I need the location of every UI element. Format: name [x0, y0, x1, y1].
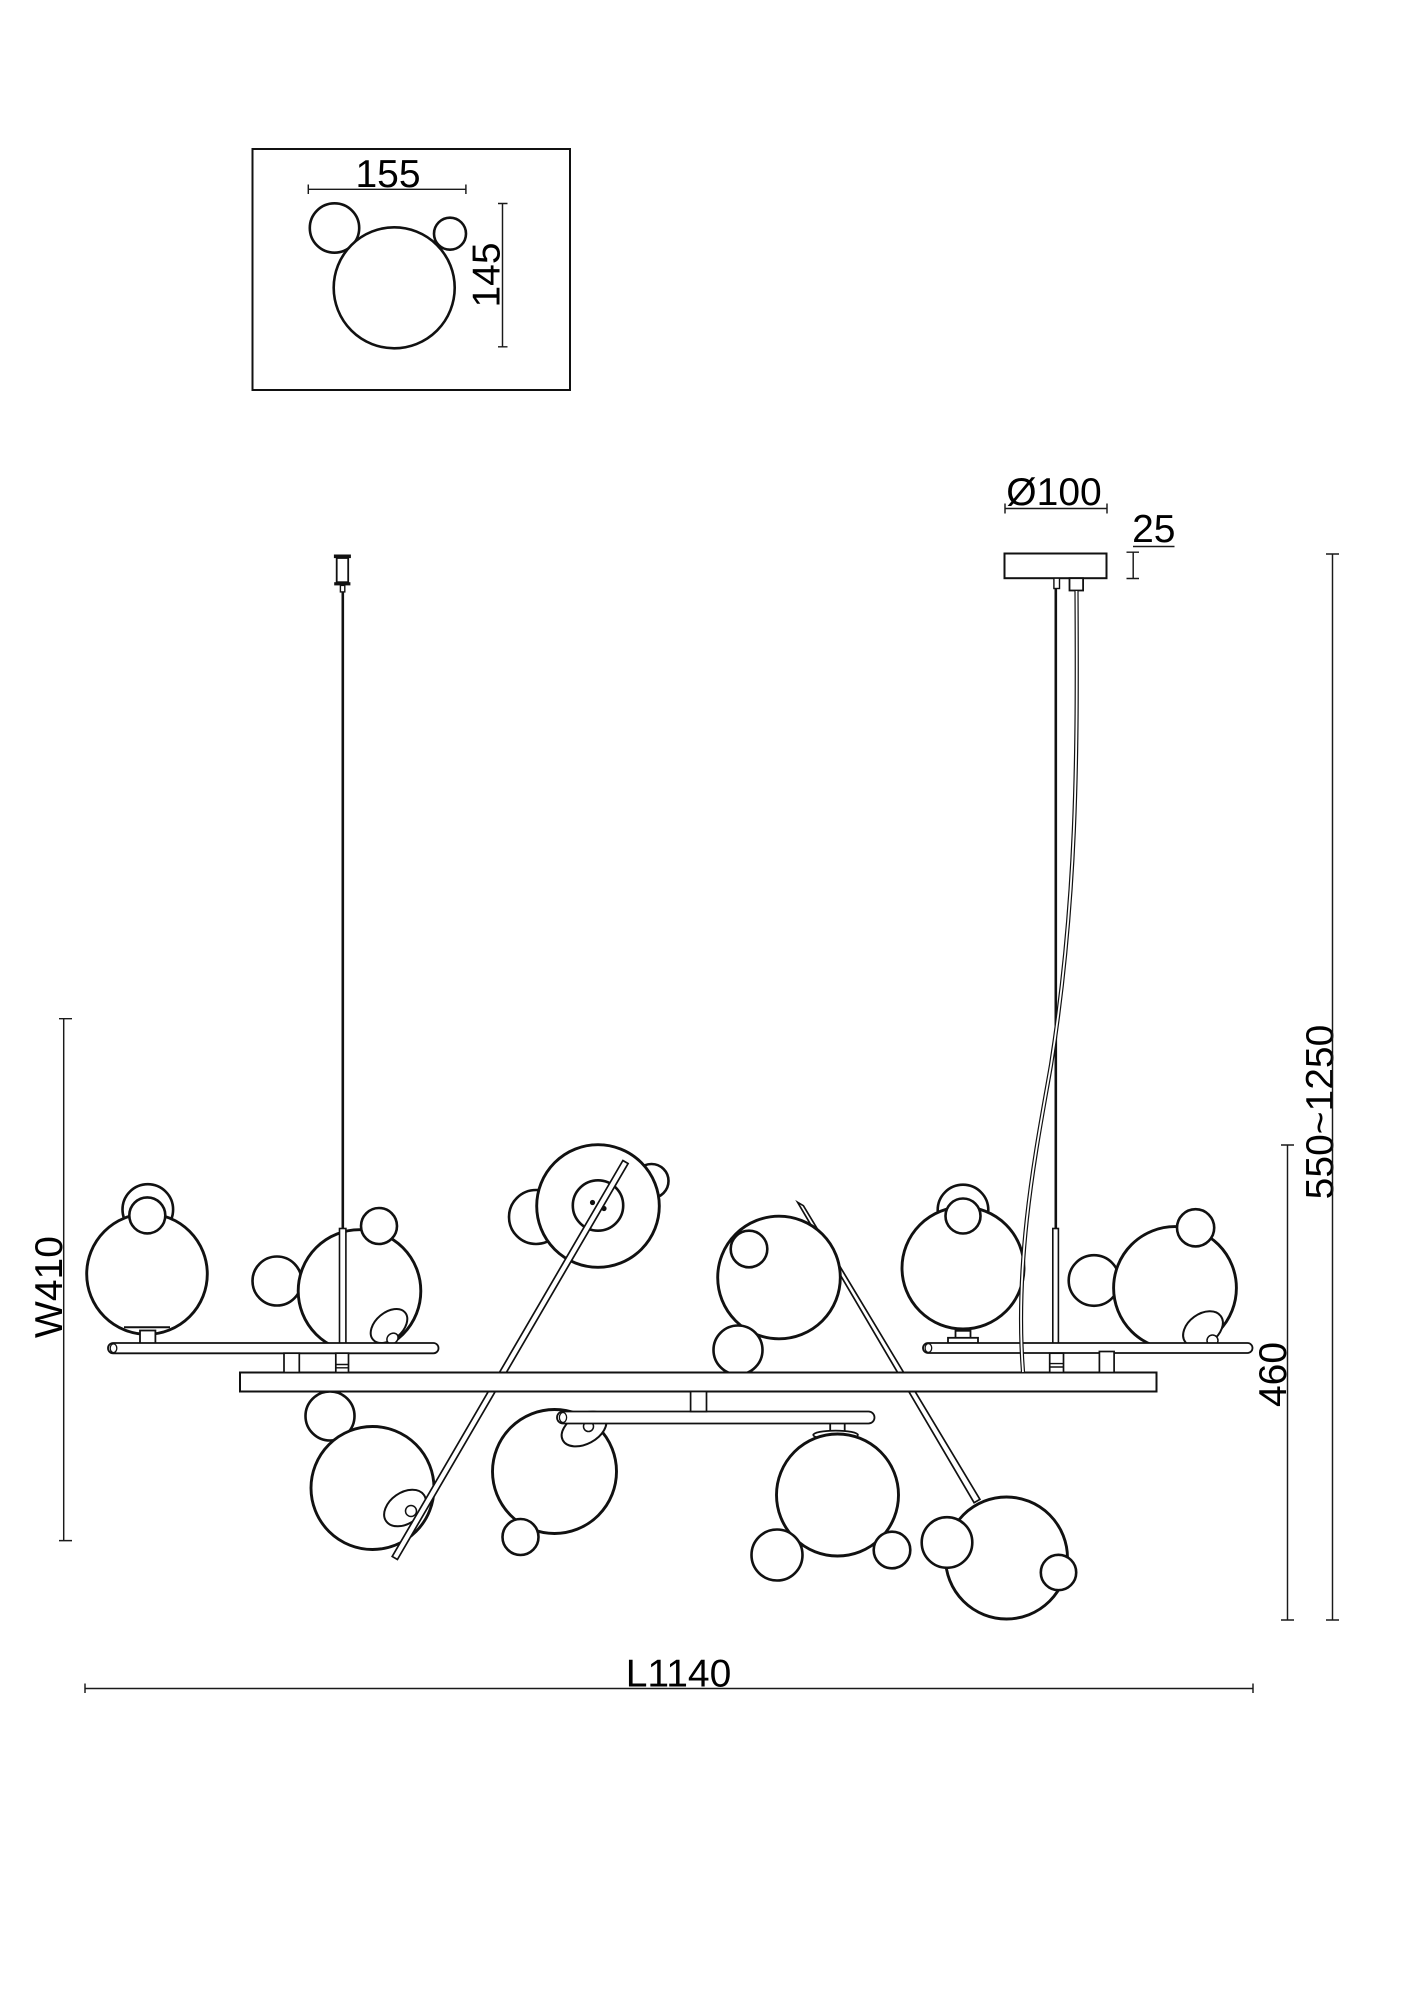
svg-text:25: 25: [1132, 508, 1175, 551]
svg-text:460: 460: [1252, 1342, 1295, 1407]
svg-text:W410: W410: [28, 1236, 71, 1338]
svg-text:Ø100: Ø100: [1006, 471, 1101, 514]
svg-text:550~1250: 550~1250: [1299, 1025, 1342, 1200]
